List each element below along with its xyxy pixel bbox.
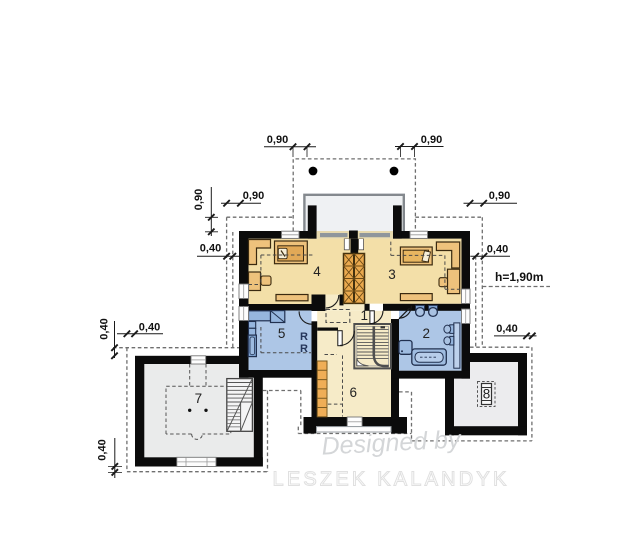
svg-text:0,40: 0,40 bbox=[200, 243, 221, 255]
svg-text:0,40: 0,40 bbox=[139, 322, 160, 334]
svg-text:7: 7 bbox=[195, 391, 203, 406]
svg-text:0,40: 0,40 bbox=[97, 439, 109, 460]
svg-text:0,40: 0,40 bbox=[496, 323, 517, 335]
svg-text:5: 5 bbox=[278, 326, 286, 341]
svg-text:8: 8 bbox=[483, 387, 491, 402]
svg-text:3: 3 bbox=[388, 267, 396, 282]
svg-text:LESZEK KALANDYK: LESZEK KALANDYK bbox=[273, 469, 510, 491]
svg-text:0,90: 0,90 bbox=[421, 134, 442, 146]
svg-text:h=1,90m: h=1,90m bbox=[495, 270, 543, 284]
svg-text:1: 1 bbox=[361, 308, 369, 323]
svg-text:0,90: 0,90 bbox=[267, 134, 288, 146]
svg-text:R: R bbox=[300, 343, 308, 355]
svg-text:0,40: 0,40 bbox=[487, 244, 508, 256]
svg-text:4: 4 bbox=[313, 264, 321, 279]
svg-text:0,90: 0,90 bbox=[243, 190, 264, 202]
svg-text:0,90: 0,90 bbox=[489, 190, 510, 202]
svg-text:2: 2 bbox=[423, 326, 431, 341]
svg-text:6: 6 bbox=[349, 385, 357, 400]
svg-text:0,40: 0,40 bbox=[99, 318, 111, 339]
svg-text:R: R bbox=[300, 331, 308, 343]
svg-text:0,90: 0,90 bbox=[193, 189, 205, 210]
